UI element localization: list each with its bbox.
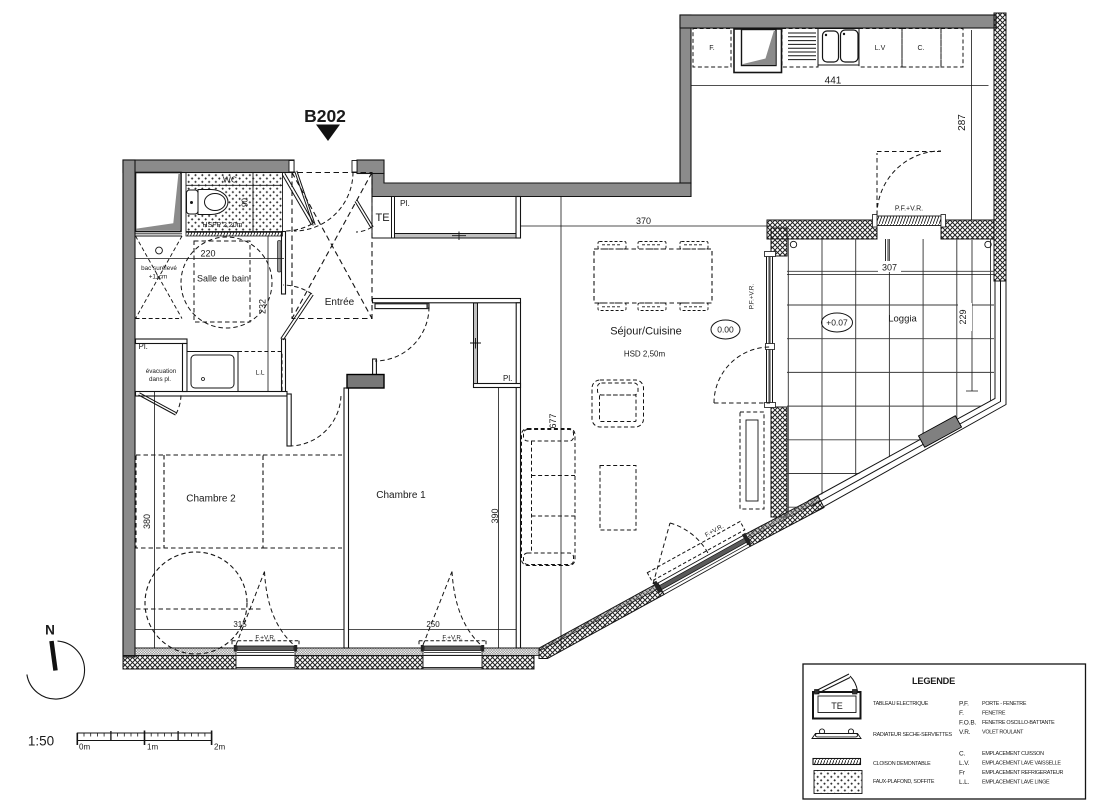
svg-text:L.L: L.L <box>255 370 264 377</box>
svg-text:Fr: Fr <box>959 770 966 777</box>
svg-text:PORTE - FENETRE: PORTE - FENETRE <box>982 701 1027 707</box>
svg-text:L.L.: L.L. <box>959 779 970 786</box>
svg-text:FENETRE OSCILLO-BATTANTE: FENETRE OSCILLO-BATTANTE <box>982 720 1055 726</box>
svg-text:+11cm: +11cm <box>149 274 168 281</box>
svg-text:P.F.: P.F. <box>959 701 969 708</box>
svg-text:RADIATEUR SECHE-SERVIETTES: RADIATEUR SECHE-SERVIETTES <box>873 732 952 738</box>
svg-text:232: 232 <box>258 299 268 314</box>
svg-text:229: 229 <box>958 309 968 324</box>
svg-text:dans pl.: dans pl. <box>149 376 171 383</box>
svg-text:EMPLACEMENT CUISSON: EMPLACEMENT CUISSON <box>982 751 1044 757</box>
svg-text:287: 287 <box>957 114 968 131</box>
svg-text:Loggia: Loggia <box>888 314 917 325</box>
svg-text:F.+V.R.: F.+V.R. <box>255 635 275 642</box>
svg-text:Pl.: Pl. <box>503 374 512 383</box>
svg-text:Séjour/Cuisine: Séjour/Cuisine <box>610 326 682 338</box>
svg-text:1m: 1m <box>147 743 158 752</box>
svg-text:Chambre 1: Chambre 1 <box>376 490 426 501</box>
svg-text:250: 250 <box>426 620 440 629</box>
svg-text:+0.07: +0.07 <box>826 318 848 328</box>
svg-text:évacuation: évacuation <box>146 368 177 375</box>
svg-text:390: 390 <box>490 508 500 523</box>
svg-text:WC: WC <box>223 175 237 185</box>
svg-text:307: 307 <box>882 263 897 273</box>
svg-text:P.F.+V.R.: P.F.+V.R. <box>749 284 756 310</box>
svg-text:Pl.: Pl. <box>139 342 148 351</box>
svg-text:C.: C. <box>959 751 966 758</box>
svg-text:TE: TE <box>831 701 843 711</box>
svg-text:CLOISON DEMONTABLE: CLOISON DEMONTABLE <box>873 761 931 767</box>
svg-text:F.O.B.: F.O.B. <box>959 720 977 727</box>
svg-text:F.: F. <box>959 710 964 717</box>
svg-text:EMPLACEMENT LAVE VAISSELLE: EMPLACEMENT LAVE VAISSELLE <box>982 761 1061 767</box>
svg-text:Pl.: Pl. <box>400 198 410 208</box>
svg-text:L.V: L.V <box>875 45 886 52</box>
svg-text:P.F.+V.R.: P.F.+V.R. <box>895 206 923 213</box>
svg-text:bac surélevé: bac surélevé <box>141 265 177 272</box>
svg-text:TABLEAU ELECTRIQUE: TABLEAU ELECTRIQUE <box>873 701 929 707</box>
svg-text:370: 370 <box>636 216 651 226</box>
svg-text:C.: C. <box>918 45 925 52</box>
svg-text:FENETRE: FENETRE <box>982 711 1006 717</box>
svg-text:EMPLACEMENT REFRIGERATEUR: EMPLACEMENT REFRIGERATEUR <box>982 770 1064 776</box>
svg-text:F.: F. <box>709 45 715 52</box>
svg-text:220: 220 <box>200 249 215 259</box>
svg-text:677: 677 <box>548 413 558 428</box>
svg-text:VOLET ROULANT: VOLET ROULANT <box>982 730 1024 736</box>
svg-text:0.00: 0.00 <box>717 325 734 335</box>
svg-text:FAUX-PLAFOND, SOFFITE: FAUX-PLAFOND, SOFFITE <box>873 779 935 785</box>
svg-text:LEGENDE: LEGENDE <box>912 676 955 686</box>
svg-text:0m: 0m <box>79 743 90 752</box>
svg-text:N: N <box>45 623 55 638</box>
svg-text:2m: 2m <box>214 743 225 752</box>
svg-text:90: 90 <box>241 198 250 207</box>
svg-text:EMPLACEMENT LAVE LINGE: EMPLACEMENT LAVE LINGE <box>982 780 1050 786</box>
svg-text:F.+V.R.: F.+V.R. <box>442 635 462 642</box>
svg-text:HSD 2,50m: HSD 2,50m <box>624 350 666 359</box>
svg-text:380: 380 <box>142 514 152 529</box>
svg-text:HSFP 2,20m: HSFP 2,20m <box>203 222 243 229</box>
svg-text:Chambre 2: Chambre 2 <box>186 494 236 505</box>
svg-text:1:50: 1:50 <box>28 734 54 749</box>
svg-text:TE: TE <box>375 212 389 224</box>
svg-text:315: 315 <box>233 620 247 629</box>
svg-text:Salle de bain: Salle de bain <box>197 274 249 284</box>
svg-text:B202: B202 <box>304 106 346 126</box>
svg-text:L.V.: L.V. <box>959 760 970 767</box>
svg-text:V.R.: V.R. <box>959 729 971 736</box>
svg-text:Entrée: Entrée <box>325 297 355 308</box>
svg-text:441: 441 <box>825 76 842 87</box>
